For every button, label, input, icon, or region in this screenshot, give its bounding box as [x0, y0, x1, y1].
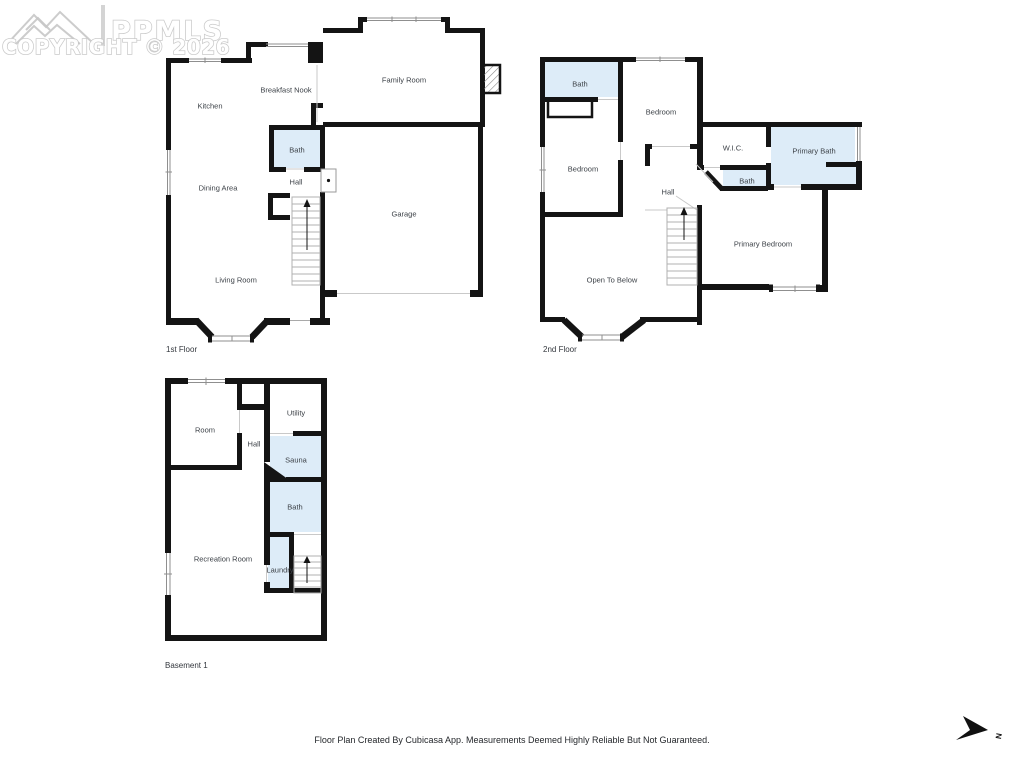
room-label-bedroom-top: Bedroom — [646, 108, 676, 117]
room-label-wic: W.I.C. — [723, 144, 743, 153]
stairs-up-arrow-icon — [304, 556, 311, 563]
room-label-sauna: Sauna — [285, 456, 308, 465]
staircase — [294, 556, 321, 593]
room-label-garage: Garage — [391, 210, 416, 219]
basement-plan: Room Utility Hall Sauna Bath Recreation … — [164, 377, 327, 670]
closet — [548, 100, 592, 117]
room-label-open-to-below: Open To Below — [587, 276, 638, 285]
room-label-hall-bsmt: Hall — [248, 440, 261, 449]
floor-label-2nd: 2nd Floor — [543, 345, 577, 354]
floor-label-basement: Basement 1 — [165, 661, 208, 670]
fireplace — [483, 65, 500, 93]
floor-plan-svg: Kitchen Breakfast Nook Family Room Bath … — [0, 0, 1024, 767]
watermark-copyright: COPYRIGHT © 2026 — [2, 35, 230, 59]
primary-bath-fill — [771, 127, 856, 185]
room-label-bath-top: Bath — [572, 80, 587, 89]
north-label: N — [994, 732, 1004, 739]
garage-door — [321, 169, 336, 192]
room-label-bath-small: Bath — [739, 177, 754, 186]
north-arrow-icon — [956, 716, 988, 740]
room-label-dining-area: Dining Area — [199, 184, 239, 193]
staircase — [292, 197, 320, 285]
room-label-kitchen: Kitchen — [197, 102, 222, 111]
room-label-family-room: Family Room — [382, 76, 426, 85]
room-label-living-room: Living Room — [215, 276, 257, 285]
floor-plan-image: Kitchen Breakfast Nook Family Room Bath … — [0, 0, 1024, 767]
room-label-room: Room — [195, 426, 215, 435]
footer-disclaimer: Floor Plan Created By Cubicasa App. Meas… — [314, 735, 709, 745]
north-arrow: N — [956, 716, 1003, 740]
room-label-bath-bsmt: Bath — [287, 503, 302, 512]
room-label-breakfast-nook: Breakfast Nook — [260, 86, 312, 95]
room-label-hall-2f: Hall — [662, 188, 675, 197]
second-floor-plan: Bath Bedroom Bedroom W.I.C. Primary Bath… — [539, 56, 862, 354]
room-label-recreation-room: Recreation Room — [194, 555, 252, 564]
staircase — [667, 207, 697, 285]
room-label-primary-bedroom: Primary Bedroom — [734, 240, 792, 249]
stairs-up-arrow-icon — [304, 199, 311, 207]
first-floor-plan: Kitchen Breakfast Nook Family Room Bath … — [165, 16, 500, 354]
room-label-utility: Utility — [287, 409, 306, 418]
room-label-bath-1f: Bath — [289, 146, 304, 155]
room-label-bedroom-left: Bedroom — [568, 165, 598, 174]
floor-label-1st: 1st Floor — [166, 345, 197, 354]
room-label-primary-bath: Primary Bath — [792, 147, 835, 156]
watermark: PPMLS COPYRIGHT © 2026 — [2, 5, 230, 59]
room-label-laundry: Laundry — [266, 566, 293, 575]
room-label-hall-1f: Hall — [290, 178, 303, 187]
